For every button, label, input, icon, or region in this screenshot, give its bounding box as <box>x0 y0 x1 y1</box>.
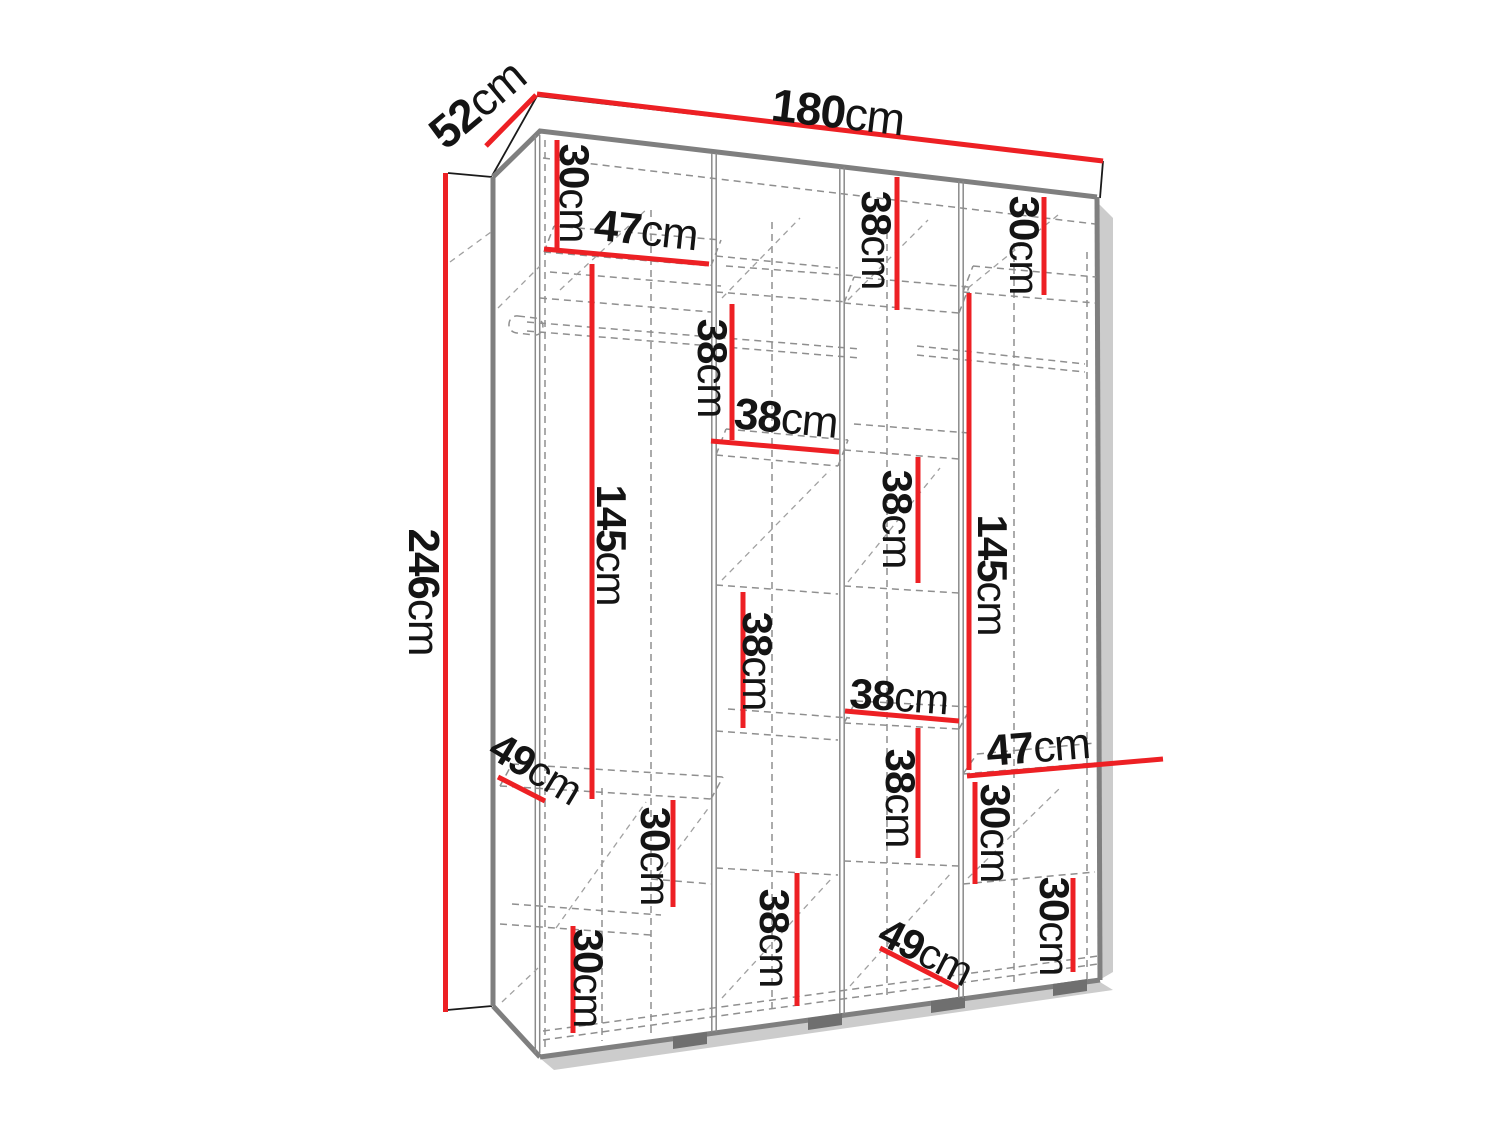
dim-label-47cm-col4-shelf: 47cm <box>984 719 1091 776</box>
dim-label-38cm-col2-shelf-width: 38cm <box>732 389 840 448</box>
diagram-page: 180cm 52cm 246cm 30cm 47cm 145cm 49cm 30… <box>0 0 1500 1125</box>
dim-label-38cm-col3-upper: 38cm <box>875 470 922 569</box>
dim-label-38cm-col2-bottom: 38cm <box>752 889 799 988</box>
dim-label-30cm-col1-mid: 30cm <box>633 807 680 906</box>
dim-label-145cm-col4-hanging: 145cm <box>970 514 1017 635</box>
dim-label-38cm-col3-top: 38cm <box>854 191 901 290</box>
dim-label-30cm-col4-bottom: 30cm <box>1032 877 1079 976</box>
dim-label-height-246cm: 246cm <box>400 528 449 655</box>
dim-label-38cm-col3-shelf-width: 38cm <box>848 669 950 723</box>
dim-label-38cm-col2-upper: 38cm <box>690 319 737 418</box>
dim-label-30cm-col4-mid: 30cm <box>973 784 1020 883</box>
dim-label-38cm-col3-lower: 38cm <box>878 749 925 848</box>
dim-label-30cm-col1-top: 30cm <box>552 144 599 243</box>
wardrobe-dimensions-diagram: 180cm 52cm 246cm 30cm 47cm 145cm 49cm 30… <box>0 0 1500 1125</box>
dim-label-38cm-col2-mid: 38cm <box>735 612 782 711</box>
dim-label-30cm-col1-bottom: 30cm <box>566 929 613 1028</box>
left-side-panel <box>447 173 492 1010</box>
dim-label-145cm-col1-hanging: 145cm <box>589 484 636 605</box>
dim-label-30cm-col4-top: 30cm <box>1002 196 1049 295</box>
